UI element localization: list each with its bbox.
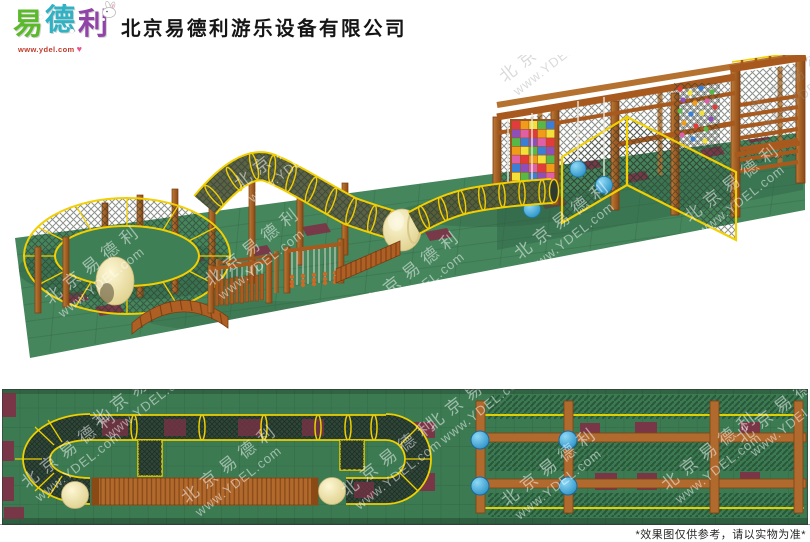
watermark: 北京易德利www.YDEL.com bbox=[756, 219, 810, 321]
plan-egg-dome bbox=[62, 482, 89, 509]
logo-char: 易 bbox=[13, 10, 43, 40]
company-logo: 易 德 利 www.ydel.com♥ bbox=[12, 3, 116, 54]
logo-url-text: www.ydel.com bbox=[18, 45, 75, 54]
blue-ball bbox=[570, 161, 586, 177]
rainbow-climbing-wall bbox=[510, 119, 556, 185]
product-sheet: 易 德 利 www.ydel.com♥ 北京易德利游乐设备有限公司 bbox=[0, 0, 810, 540]
logo-url: www.ydel.com♥ bbox=[18, 44, 114, 54]
render-3d-view: 北京易德利www.YDEL.com 北京易德利www.YDEL.com 北京易德… bbox=[0, 55, 810, 385]
company-name: 北京易德利游乐设备有限公司 bbox=[121, 12, 407, 41]
climbing-holds-panel bbox=[674, 83, 720, 149]
plan-top-view: 北京易德利www.YDEL.com 北京易德利www.YDEL.com 北京易德… bbox=[2, 389, 808, 525]
plan-blue-ball bbox=[471, 431, 489, 449]
sparkle-icon bbox=[39, 15, 43, 19]
heart-icon: ♥ bbox=[77, 44, 83, 54]
sparkle-icon bbox=[102, 18, 105, 21]
footer-divider bbox=[0, 524, 810, 525]
plan-blue-ball bbox=[471, 477, 489, 495]
rabbit-mascot-icon bbox=[96, 1, 118, 18]
sparkle-icon bbox=[70, 29, 74, 33]
